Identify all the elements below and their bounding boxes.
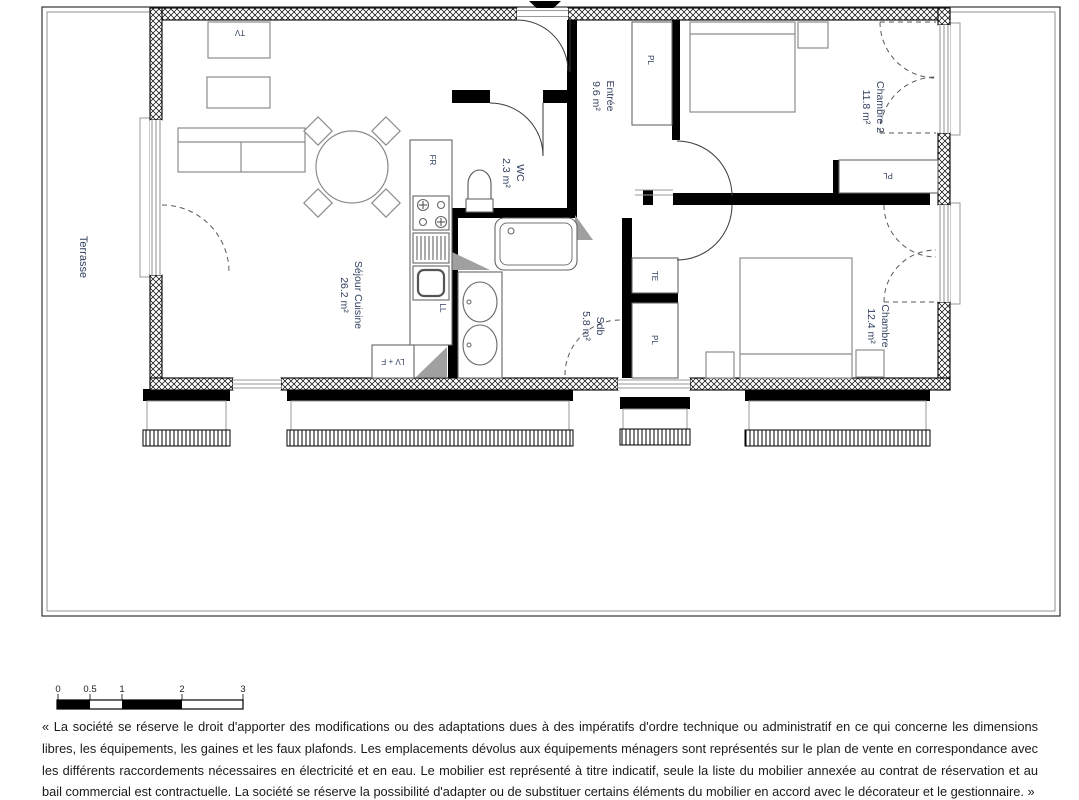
- label-closet-bath: PL: [650, 335, 659, 345]
- label-closet-entry: PL: [646, 55, 655, 65]
- sink-drainer: [413, 233, 449, 263]
- svg-text:Séjour Cuisine: Séjour Cuisine: [352, 261, 364, 329]
- cooktop: [413, 196, 449, 230]
- toilet: [466, 170, 493, 212]
- entry-door: [517, 20, 570, 72]
- label-entree: Entrée 9.6 m²: [590, 81, 616, 112]
- bed-bedroom: [706, 258, 884, 378]
- railing-segment: [745, 389, 930, 446]
- svg-text:Chambre: Chambre: [879, 304, 891, 347]
- label-chambre: Chambre 12.4 m²: [865, 304, 891, 347]
- floor-plan-drawing: Terrasse Séjour Cuisine 26.2 m² WC 2.3 m…: [0, 0, 1079, 712]
- vanity-double-basin: [458, 272, 502, 378]
- bathroom-window: [618, 378, 690, 390]
- scale-tick-label: 0: [55, 684, 60, 695]
- svg-text:26.2 m²: 26.2 m²: [338, 277, 350, 313]
- bed-bedroom2: [690, 22, 828, 112]
- wc-door: [490, 103, 543, 156]
- floor-plan-page: Terrasse Séjour Cuisine 26.2 m² WC 2.3 m…: [0, 0, 1079, 800]
- scale-bar: 0 0.5 1 2 3: [55, 684, 245, 709]
- label-dishwasher-oven: LV + F: [381, 357, 404, 366]
- label-washer: LL: [438, 304, 447, 313]
- svg-text:9.6 m²: 9.6 m²: [590, 81, 602, 111]
- bedroom-window: [938, 205, 950, 302]
- bedroom2-window: [938, 25, 950, 133]
- entry-door-opening: [517, 8, 568, 20]
- bedroom-french-window-swing: [884, 205, 936, 302]
- terrace-door-window: [150, 120, 162, 275]
- bathtub: [495, 218, 577, 270]
- label-fridge: FR: [428, 155, 437, 166]
- dining-table: [304, 117, 400, 217]
- scale-tick-label: 0.5: [83, 684, 96, 695]
- svg-text:5.8 m²: 5.8 m²: [580, 311, 592, 341]
- svg-text:12.4 m²: 12.4 m²: [865, 308, 877, 344]
- living-balcony-door: [233, 378, 281, 390]
- balcony-railings: [143, 389, 930, 446]
- legal-disclaimer-text: « La société se réserve le droit d'appor…: [42, 716, 1038, 800]
- label-closet-bedroom2: PL: [883, 171, 893, 180]
- label-chambre2: Chambre 2 11.8 m²: [860, 81, 886, 133]
- railing-segment: [143, 389, 230, 446]
- label-tv: TV: [234, 28, 245, 37]
- coffee-table: [207, 77, 270, 108]
- bedroom-door: [677, 205, 732, 260]
- svg-text:Sdb: Sdb: [594, 317, 606, 336]
- railing-segment: [620, 397, 690, 445]
- svg-text:11.8 m²: 11.8 m²: [860, 90, 872, 125]
- railing-segment: [287, 389, 573, 446]
- label-terrasse: Terrasse: [77, 236, 89, 278]
- bedroom2-french-window-swing: [880, 22, 936, 133]
- label-wc: WC 2.3 m²: [500, 158, 526, 188]
- bathroom-fixtures: [458, 170, 577, 378]
- svg-text:WC: WC: [514, 164, 526, 182]
- living-room-furniture: [178, 22, 400, 217]
- terrace-door-swing: [162, 205, 229, 272]
- label-sejour: Séjour Cuisine 26.2 m²: [338, 261, 364, 329]
- scale-tick-label: 3: [240, 684, 245, 695]
- sofa: [178, 128, 305, 172]
- label-sdb: Sdb 5.8 m²: [580, 311, 606, 341]
- entry-closet: [632, 22, 672, 125]
- kitchen-sink: [413, 266, 449, 300]
- svg-text:Entrée: Entrée: [604, 81, 616, 112]
- bedroom2-door: [635, 141, 732, 196]
- scale-tick-label: 2: [179, 684, 184, 695]
- scale-tick-label: 1: [119, 684, 124, 695]
- svg-text:2.3 m²: 2.3 m²: [500, 158, 512, 188]
- svg-text:Chambre 2: Chambre 2: [874, 81, 886, 133]
- tv-stand: [208, 22, 270, 58]
- label-technical: TE: [650, 271, 659, 281]
